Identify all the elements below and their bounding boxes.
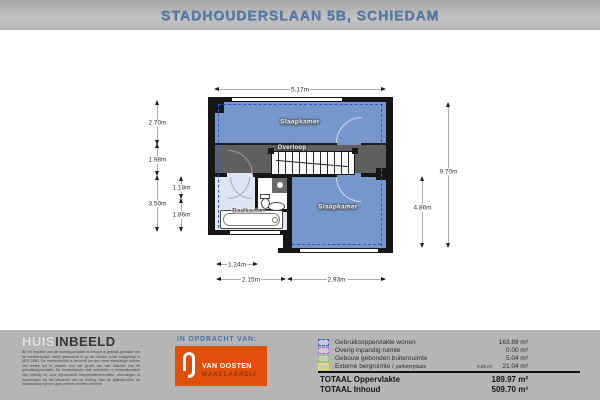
window-bedroom [300,248,378,253]
stair-newel-right [352,148,358,154]
legend-extra-value: 0.00 m² [477,364,492,369]
total-label: TOTAAL Inhoud [320,385,380,394]
legend-row: Gebouw gebonden buitenruimte 5.04 m² [318,354,528,362]
total-row: TOTAAL Oppervlakte 189.97 m² [320,375,528,384]
dim-right-outer-label: 9.70m [438,169,458,176]
legend-value: 21.04 m² [502,363,528,370]
label-landing: Overloop [278,145,307,151]
dim-left-2-label: 1.98m [147,156,167,163]
dim-left-2: 1.98m [157,144,158,175]
door-opening-bedroom-top [337,143,361,145]
dim-top-label: 5.17m [290,86,310,93]
label-bedroom-right: Slaapkamer [318,204,358,211]
dim-left-1: 2.70m [157,101,158,144]
legend-swatch-overig [318,347,329,354]
dim-bottom-2b-label: 2.93m [326,276,346,283]
van-oosten-logo: VAN OOSTEN MAKELAARDIJ [175,346,267,386]
client-name: VAN OOSTEN [202,363,252,370]
legend-label: Gebouw gebonden buitenruimte [335,355,506,362]
wall-corner-block [208,97,224,113]
measure-dash-left [218,104,219,228]
huisinbeeld-logo: HUISINBEELD [22,334,116,349]
legend-swatch-bergruimte [318,363,329,370]
wall-stub [283,233,292,248]
label-bedroom-top: Slaapkamer [280,119,320,126]
measure-dash-right [381,104,382,246]
legend-row: Externe bergruimte /parkeerplaats 0.00 m… [318,362,528,370]
dim-left-1-label: 2.70m [147,119,167,126]
legend-label: Overig inpandig ruimte [335,347,506,354]
legend-label-small: parkeerplaats [396,364,426,370]
dim-bottom-2a-label: 2.15m [241,276,261,283]
header-bar: STADHOUDERSLAAN 5B, SCHIEDAM [0,0,600,30]
legend-label-main: Externe bergruimte / [335,363,394,370]
dim-left-3: 3.50m [157,176,158,231]
client-subtitle: MAKELAARDIJ [202,372,257,378]
dim-left-inner-1: 1.18m [181,177,182,198]
window-top [232,97,342,102]
legend-value: 0.00 m² [506,347,528,354]
brand-part1: HUIS [22,334,55,349]
total-value: 189.97 m² [492,375,528,384]
shower-drain-icon [277,182,283,188]
dim-left-inner-2-label: 1.86m [171,212,191,219]
dim-left-inner-1-label: 1.18m [171,184,191,191]
dim-right-inner: 4.86m [422,177,423,247]
legend-label: Externe bergruimte /parkeerplaats [335,363,477,370]
wall-chimney-block [376,168,393,180]
dim-left-3-label: 3.50m [147,200,167,207]
dim-bottom-1-label: 1.24m [227,261,247,268]
dim-left-inner-2: 1.86m [181,199,182,231]
legend-divider [318,371,580,373]
legend-label: Gebruiksoppervlakte wonen [335,339,499,346]
stair-newel-left [268,148,274,154]
dim-bottom-2b: 2.93m [288,279,385,280]
wall-left [208,97,215,233]
dim-right-outer: 9.70m [448,103,449,247]
legend-row: Gebruiksoppervlakte wonen 163.89 m² [318,338,528,346]
measure-dash-bottom [292,244,381,245]
measure-dash-top [218,104,383,105]
dim-bottom-1: 1.24m [217,264,257,265]
total-row: TOTAAL Inhoud 509.70 m³ [320,385,528,394]
client-heading: IN OPDRACHT VAN: [177,336,257,343]
dim-right-inner-label: 4.86m [412,204,432,211]
page-title: STADHOUDERSLAAN 5B, SCHIEDAM [161,7,439,23]
legend-row: Overig inpandig ruimte 0.00 m² [318,346,528,354]
legend-value: 5.04 m² [506,355,528,362]
legend-value: 163.89 m² [499,339,528,346]
brand-part2: INBEELD [55,334,116,349]
window-bathroom [230,230,280,235]
disclaimer-text: Bij het bepalen van de vloeroppervlakte … [22,350,140,387]
total-label: TOTAAL Oppervlakte [320,375,400,384]
dim-top: 5.17m [215,89,385,90]
footer: HUISINBEELD Bij het bepalen van de vloer… [0,330,600,400]
van-oosten-door-icon [183,352,195,378]
legend-swatch-buitenruimte [318,355,329,362]
label-bathroom: Badkamer [232,208,266,215]
legend-swatch-wonen [318,339,329,346]
total-value: 509.70 m³ [492,385,528,394]
dim-bottom-2a: 2.15m [217,279,285,280]
bathtub-drain-icon [272,217,278,223]
floorplan-page: STADHOUDERSLAAN 5B, SCHIEDAM [0,0,600,400]
